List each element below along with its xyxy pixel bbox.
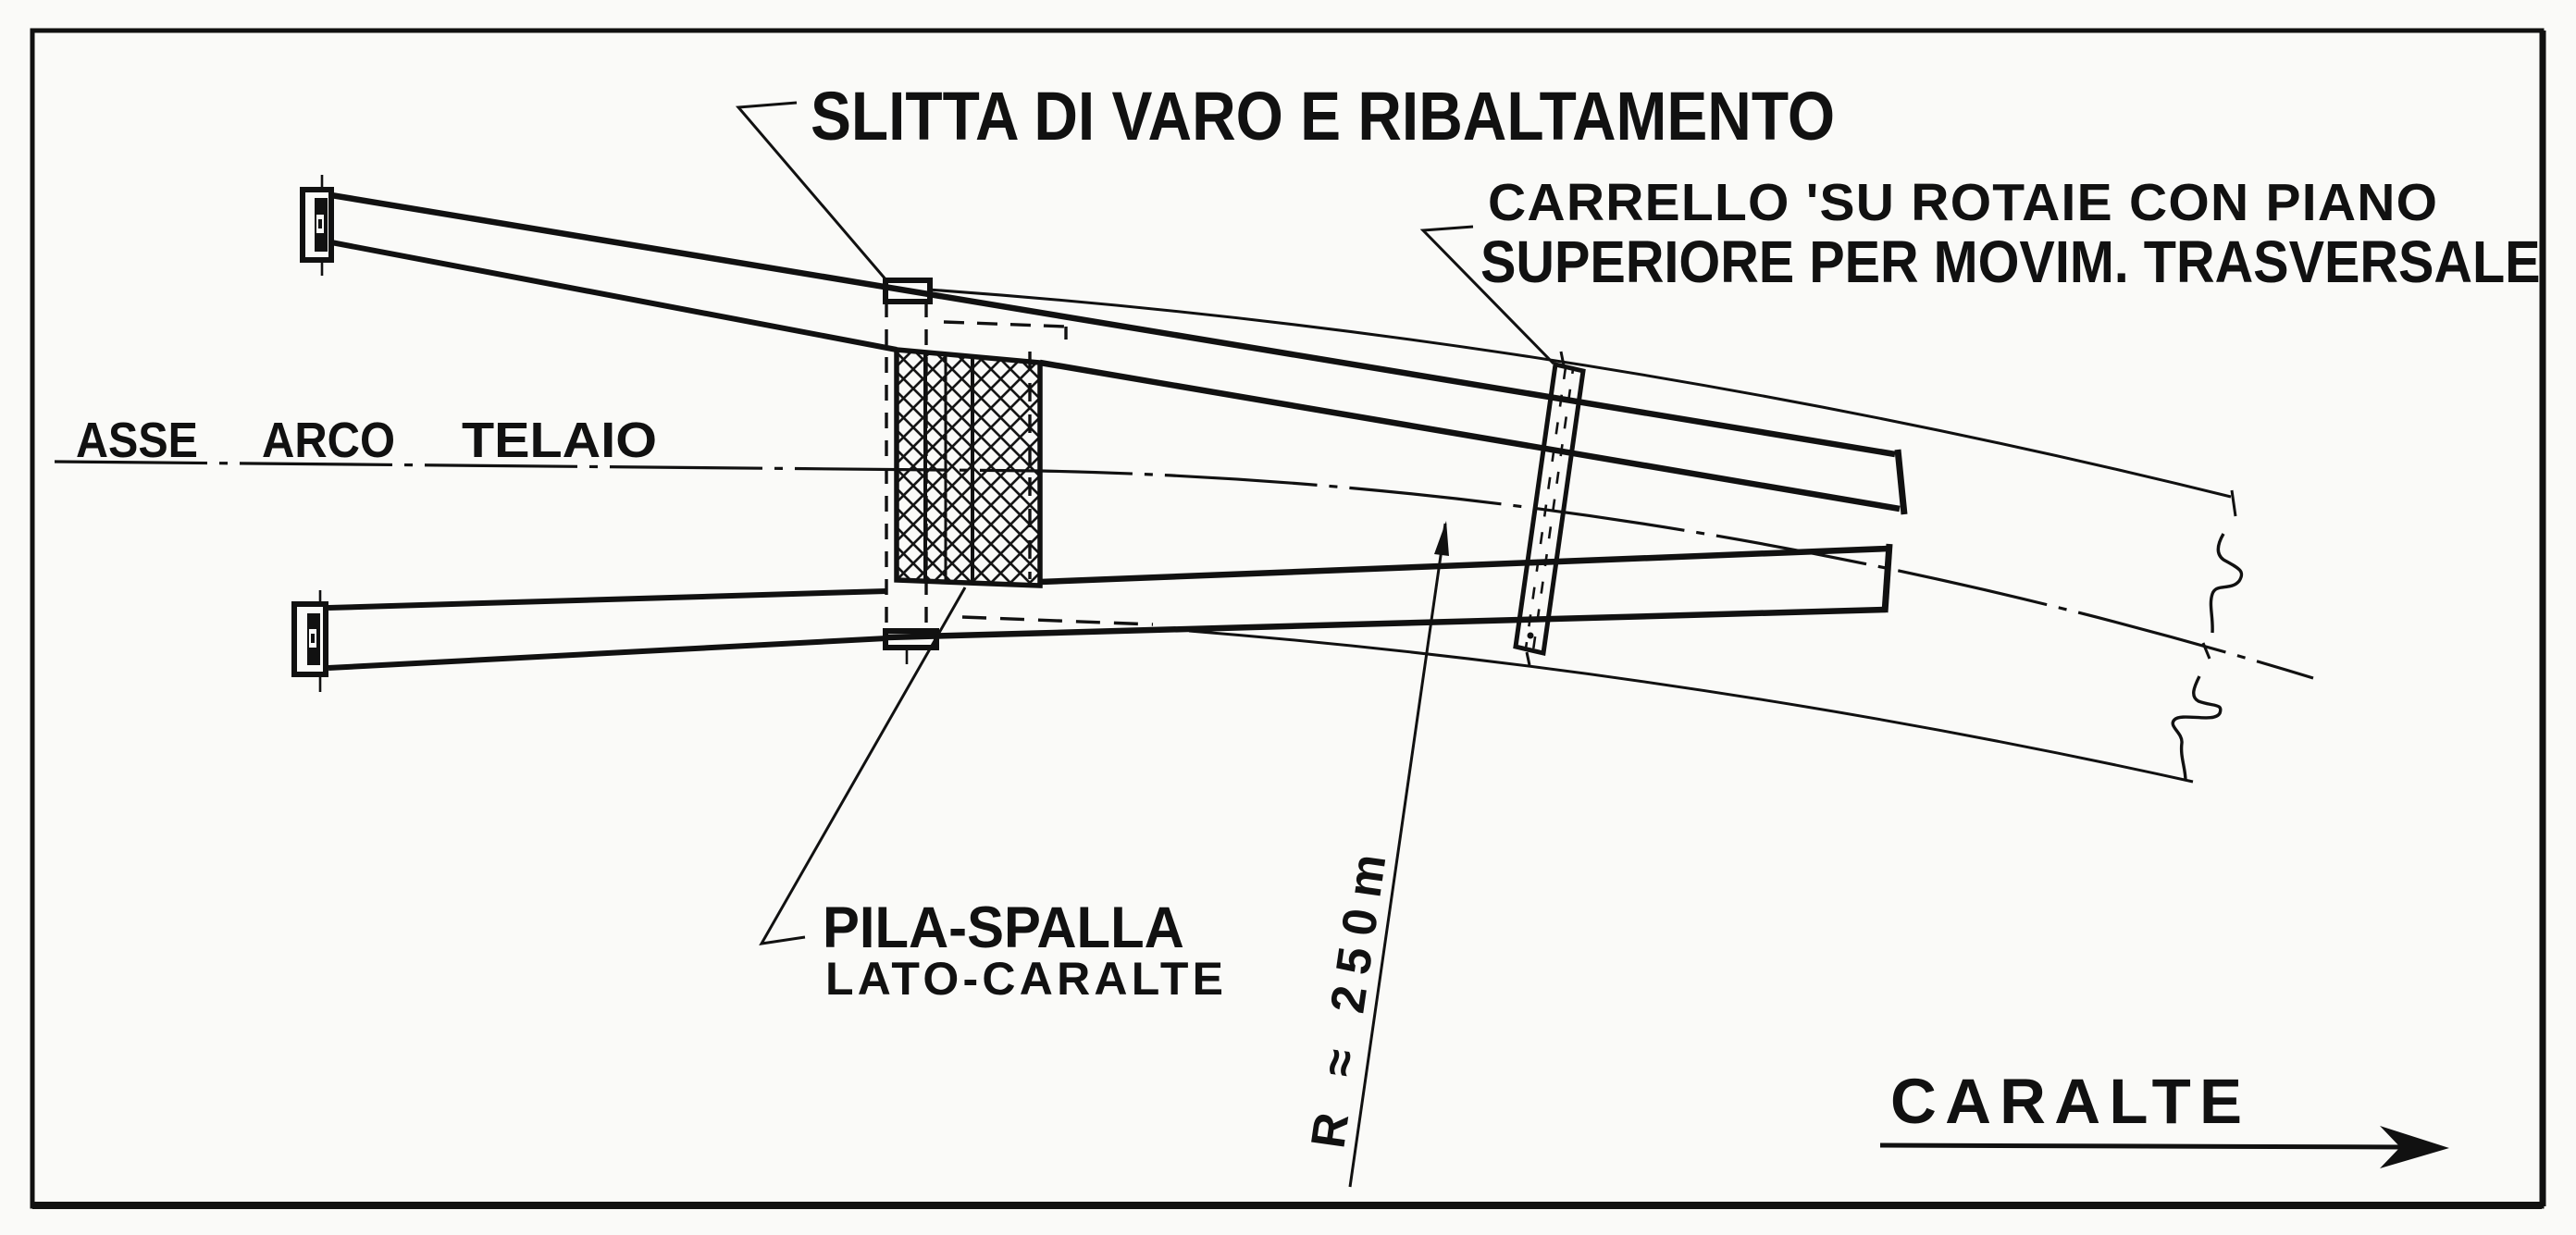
svg-text:LATO-CARALTE: LATO-CARALTE — [825, 953, 1223, 1005]
svg-text:TELAIO: TELAIO — [462, 413, 657, 468]
svg-text:CARRELLO 'SU ROTAIE CON PIANO: CARRELLO 'SU ROTAIE CON PIANO — [1488, 173, 2437, 232]
svg-text:SUPERIORE PER MOVIM. TRASVERSA: SUPERIORE PER MOVIM. TRASVERSALE — [1480, 228, 2541, 294]
svg-text:ARCO: ARCO — [262, 413, 395, 468]
svg-text:ASSE: ASSE — [76, 413, 198, 468]
svg-text:PILA-SPALLA: PILA-SPALLA — [823, 895, 1184, 961]
svg-text:SLITTA DI VARO E RIBALTAMENTO: SLITTA DI VARO E RIBALTAMENTO — [811, 78, 1835, 154]
